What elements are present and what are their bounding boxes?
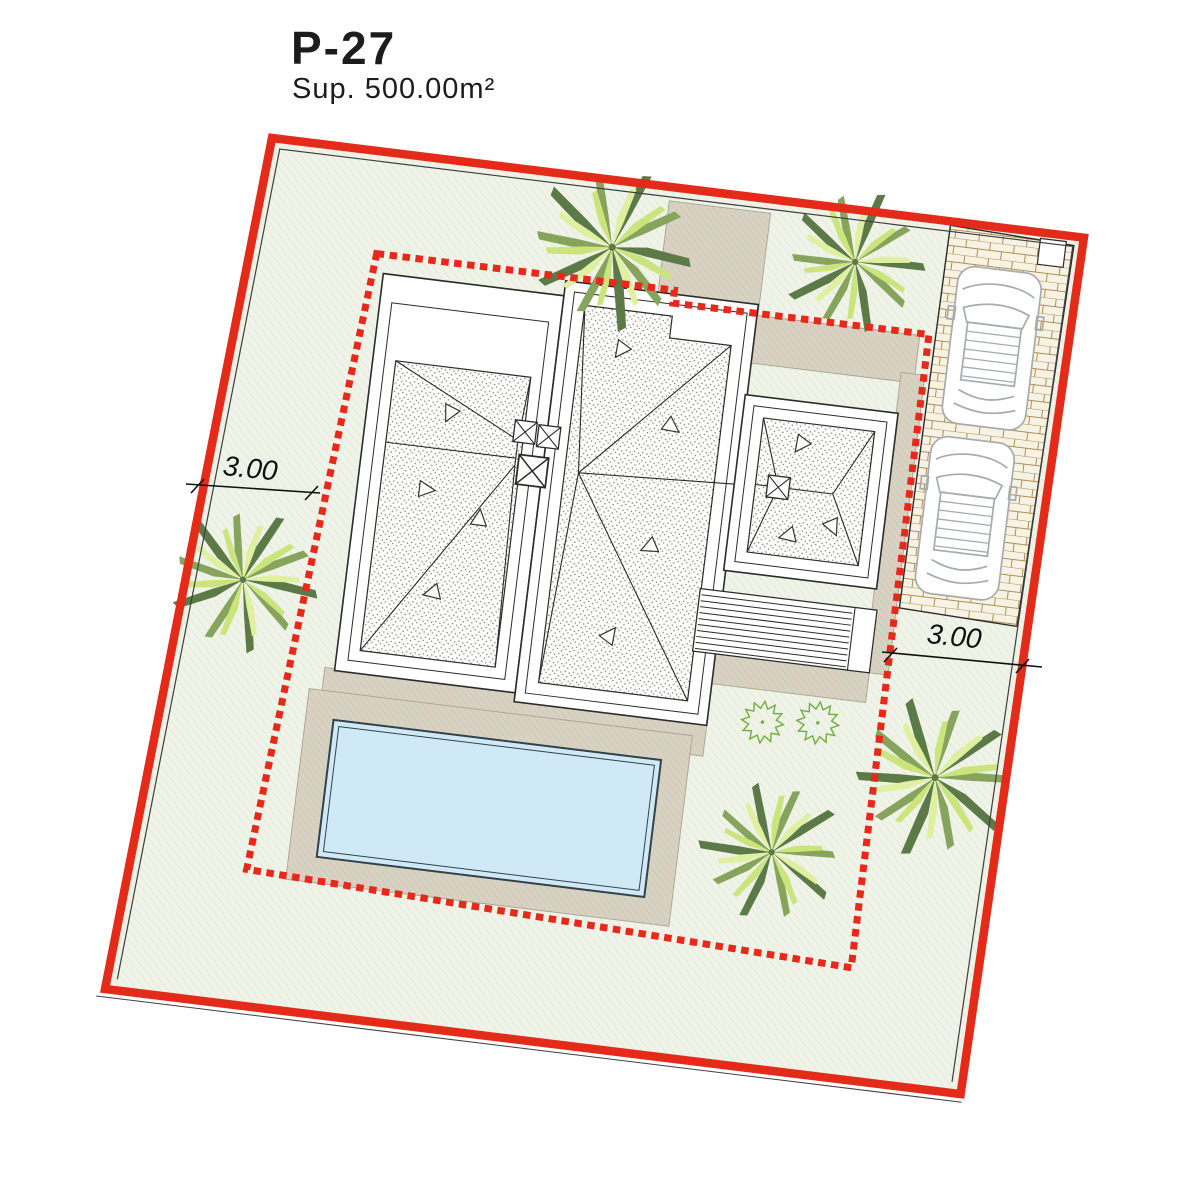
house-roof-right <box>724 395 898 589</box>
setback-left-label: 3.00 <box>222 450 280 487</box>
rotated-site-group <box>96 100 1117 1108</box>
site-plan-page: 3.00 3.00 P-27 Sup. 500.00m² <box>0 0 1200 1200</box>
title-block: P-27 Sup. 500.00m² <box>291 22 495 105</box>
chimney-1-icon <box>513 420 538 445</box>
chimney-2-icon <box>536 425 561 450</box>
chimney-3-icon <box>516 454 549 487</box>
chimney-4-icon <box>766 475 791 500</box>
plot-area-label: Sup. 500.00m² <box>292 73 495 105</box>
setback-right-label: 3.00 <box>926 618 984 655</box>
site-plan-drawing: 3.00 3.00 P-27 Sup. 500.00m² <box>0 0 1200 1200</box>
plot-title: P-27 <box>291 22 396 74</box>
